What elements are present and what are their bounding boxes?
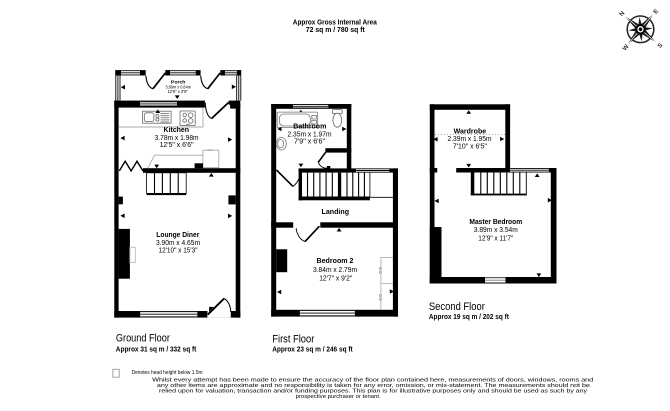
svg-text:7'9" x 6'6": 7'9" x 6'6" <box>294 137 325 146</box>
svg-text:12'9" x 11'7": 12'9" x 11'7" <box>478 234 513 243</box>
svg-text:Denotes head height below 1.5m: Denotes head height below 1.5m <box>132 370 203 376</box>
svg-text:12'9" x 2'9": 12'9" x 2'9" <box>167 89 188 94</box>
svg-text:Second Floor: Second Floor <box>429 301 485 313</box>
svg-text:12'7" x 9'2": 12'7" x 9'2" <box>319 274 352 283</box>
svg-text:12'10" x 15'3": 12'10" x 15'3" <box>159 246 198 255</box>
svg-text:Approx 23 sq m / 246 sq ft: Approx 23 sq m / 246 sq ft <box>272 345 353 354</box>
svg-text:prospective purchaser or tenan: prospective purchaser or tenant. <box>296 394 381 400</box>
svg-text:Ground Floor: Ground Floor <box>116 333 170 345</box>
svg-text:7'10" x 6'5": 7'10" x 6'5" <box>453 142 487 151</box>
svg-text:S: S <box>656 42 664 50</box>
svg-text:Approx 19 sq m / 202 sq ft: Approx 19 sq m / 202 sq ft <box>429 312 509 321</box>
svg-text:72 sq m / 780 sq ft: 72 sq m / 780 sq ft <box>306 25 365 34</box>
svg-text:Landing: Landing <box>322 207 350 216</box>
svg-text:Bedroom 2: Bedroom 2 <box>317 256 354 265</box>
svg-text:12'5" x 6'6": 12'5" x 6'6" <box>160 140 194 149</box>
svg-text:Approx 31 sq m / 332 sq ft: Approx 31 sq m / 332 sq ft <box>116 345 197 354</box>
svg-text:W: W <box>621 43 630 52</box>
svg-text:3.84m x 2.79m: 3.84m x 2.79m <box>313 265 357 274</box>
